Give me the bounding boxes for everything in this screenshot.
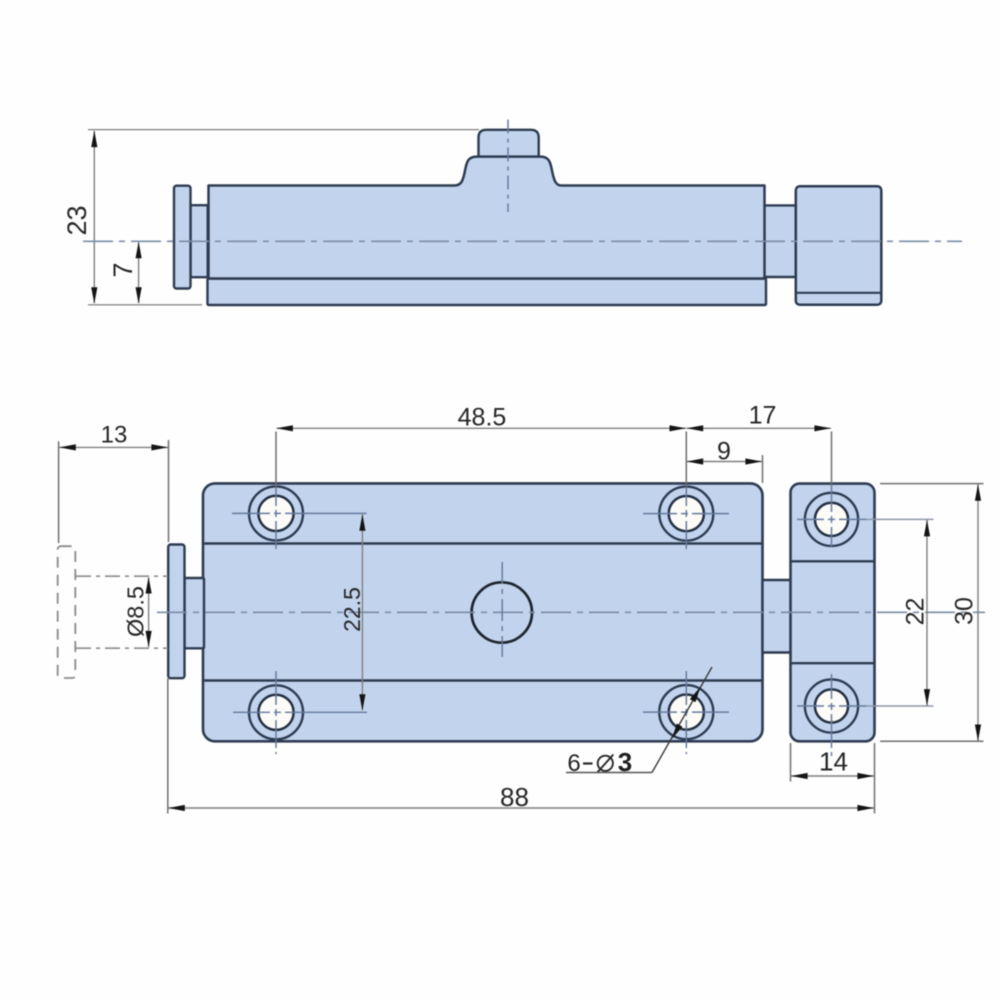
svg-text:88: 88 bbox=[500, 782, 529, 812]
svg-text:14: 14 bbox=[819, 747, 848, 777]
svg-text:Ø8.5: Ø8.5 bbox=[123, 586, 149, 637]
svg-text:9: 9 bbox=[717, 438, 731, 466]
svg-text:7: 7 bbox=[108, 262, 138, 277]
svg-text:17: 17 bbox=[749, 402, 777, 430]
svg-text:48.5: 48.5 bbox=[458, 404, 507, 432]
svg-text:30: 30 bbox=[951, 597, 979, 625]
svg-text:13: 13 bbox=[101, 422, 128, 449]
svg-text:22: 22 bbox=[902, 598, 930, 626]
svg-text:23: 23 bbox=[62, 205, 92, 235]
svg-text:22.5: 22.5 bbox=[339, 587, 365, 632]
